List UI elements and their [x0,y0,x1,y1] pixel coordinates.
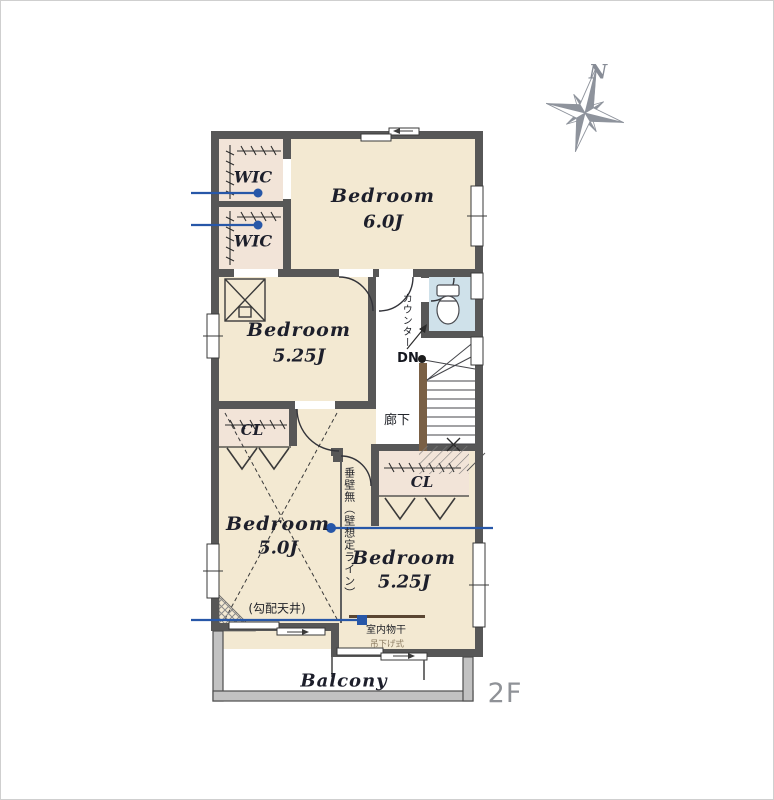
bedroom50-name: Bedroom [226,515,330,535]
floor-indicator: 2F [488,680,523,708]
compass-rose [537,57,636,162]
counter-label: カウンター [400,293,411,348]
hallway-label: 廊下 [384,414,410,428]
floorplan-page: N WIC WIC Bedroom 6.0J Bedroom 5.25J CL … [0,0,774,800]
wic2-label: WIC [234,234,272,251]
balcony-label: Balcony [300,673,387,692]
sloped-ceiling-note: (勾配天井) [248,603,305,616]
dn-marker-dot [418,355,426,363]
drying-type-label: 吊下げ式 [370,641,404,650]
bedroom50-size: 5.0J [258,540,298,559]
slope-hatch [419,446,469,474]
stairs-down-label: DN [397,352,419,366]
compass-north-label: N [589,62,607,83]
indoor-drying-label: 室内物干 [366,626,406,637]
toilet-icon [437,285,459,324]
bedroom6-size: 6.0J [363,214,403,233]
no-hanging-wall-label: 垂壁無（壁想定ライン） [343,467,355,599]
closet-left-label: CL [241,423,264,439]
bedroom525btm-size: 5.25J [378,574,430,593]
bedroom525btm-name: Bedroom [352,549,456,569]
bedroom525mid-name: Bedroom [247,321,351,341]
wic1-label: WIC [234,170,272,187]
bedroom6-name: Bedroom [331,187,435,207]
assumed-wall-line [340,461,342,623]
closet-right-label: CL [411,475,434,491]
bedroom525mid-size: 5.25J [273,348,325,367]
